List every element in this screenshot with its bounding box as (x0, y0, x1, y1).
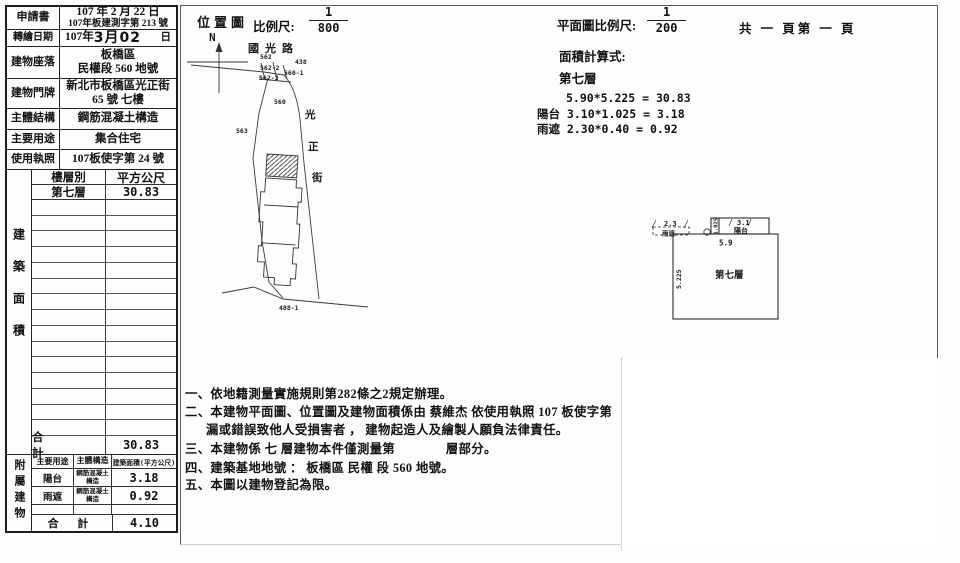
table-empty-row (32, 216, 176, 232)
table-empty-row (32, 405, 176, 421)
table-row-address: 建物門牌 新北市板橋區光正街 65 號 七樓 (7, 79, 176, 109)
annex-section: 附屬建物 主要用途 主體構造 建築面積(平方公尺) 陽台 鋼筋混凝土構造 3.1… (7, 455, 176, 531)
application-label: 申請書 (7, 7, 60, 29)
parcel-562: 562 (260, 53, 272, 61)
north-label: N (209, 31, 216, 44)
street-char-2: 正 (308, 141, 319, 153)
balcony-dim: 3.1 (737, 219, 750, 227)
annex-total-value: 4.10 (113, 515, 176, 531)
application-case-number: 107年板建測字第 213 號 (68, 19, 168, 30)
address-number: 65 號 七樓 (92, 94, 144, 107)
address-label: 建物門牌 (7, 79, 60, 108)
floor-area-side-label: 建築面積 (11, 228, 28, 454)
annex-area-header: 建築面積(平方公尺) (112, 455, 176, 468)
table-empty-row (32, 263, 176, 279)
floor-col-header: 樓層別 (32, 170, 106, 184)
annex-structure-header: 主體構造 (74, 455, 112, 468)
annex-total-label: 合 計 (32, 515, 113, 531)
floor-data-row: 第七層 30.83 (32, 185, 176, 200)
structure-value: 鋼筋混凝土構造 (60, 109, 176, 129)
survey-document-page: 申請書 107 年 2 月 22 日 107年板建測字第 213 號 轉繪日期 … (0, 0, 960, 563)
annex-balcony-structure: 鋼筋混凝土構造 (74, 469, 112, 486)
transcribe-date-label: 轉繪日期 (7, 30, 60, 46)
location-parcel: 民權段 560 地號 (78, 63, 159, 76)
table-empty-row (32, 326, 176, 342)
floor-total-value: 30.83 (106, 436, 176, 454)
road-name-top: 國光路 (248, 41, 299, 55)
table-row-license: 使用執照 107板使字第 24 號 (7, 150, 176, 170)
table-row-application: 申請書 107 年 2 月 22 日 107年板建測字第 213 號 (7, 7, 176, 30)
location-label: 建物座落 (7, 47, 60, 78)
usage-value: 集合住宅 (60, 130, 176, 149)
license-value: 107板使字第 24 號 (60, 150, 176, 169)
annex-balcony-use: 陽台 (32, 469, 74, 486)
annex-canopy-structure: 鋼筋混凝土構造 (74, 487, 112, 504)
location-district: 板橋區 (101, 49, 136, 62)
annex-side-strip: 附屬建物 (7, 455, 32, 531)
location-value: 板橋區 民權段 560 地號 (60, 47, 176, 78)
table-empty-row (32, 342, 176, 358)
street-char-3: 街 (311, 171, 323, 184)
subject-unit-hatched (266, 154, 298, 178)
floor-name: 第七層 (32, 185, 106, 199)
annex-use-header: 主要用途 (32, 455, 74, 468)
floor-area-table: 樓層別 平方公尺 第七層 30.83 (32, 170, 176, 454)
annex-table: 主要用途 主體構造 建築面積(平方公尺) 陽台 鋼筋混凝土構造 3.18 雨遮 … (32, 455, 176, 531)
annex-canopy-use: 雨遮 (32, 487, 74, 504)
annex-header-row: 主要用途 主體構造 建築面積(平方公尺) (32, 455, 176, 469)
structure-label: 主體結構 (7, 109, 60, 129)
parcel-560: 560 (274, 98, 286, 106)
floor-area-value: 30.83 (106, 185, 176, 199)
parcel-562-3: 562-3 (259, 74, 279, 82)
floor-total-label: 合 計 (32, 436, 106, 454)
transcribe-date-value: 107年 3月02 日 (60, 30, 176, 46)
parcel-563: 563 (236, 127, 248, 135)
canopy-dim: 2.3 (664, 220, 677, 228)
area-col-header: 平方公尺 (106, 170, 176, 184)
annex-canopy-area: 0.92 (112, 487, 176, 504)
main-height-dim: 5.225 (675, 269, 683, 289)
parcel-488-1: 488-1 (279, 304, 299, 312)
main-width-dim: 5.9 (719, 239, 733, 248)
annex-row-balcony: 陽台 鋼筋混凝土構造 3.18 (32, 469, 176, 487)
parcel-560-1: 560-1 (284, 69, 304, 77)
building-footprint (255, 154, 304, 286)
license-label: 使用執照 (7, 150, 60, 169)
table-row-structure: 主體結構 鋼筋混凝土構造 (7, 109, 176, 130)
annex-empty-row (32, 505, 176, 515)
canopy-label: 雨遮 (662, 229, 676, 238)
application-date: 107 年 2 月 22 日 (76, 6, 159, 19)
floor-area-side-strip: 建築面積 (7, 170, 32, 454)
address-value: 新北市板橋區光正街 65 號 七樓 (60, 79, 176, 108)
parcel-562-2: 562-2 (260, 64, 280, 72)
table-empty-row (32, 200, 176, 216)
transcribe-day-suffix: 日 (161, 32, 172, 44)
transcribe-stamp: 3月02 (94, 30, 141, 46)
table-row-usage: 主要用途 集合住宅 (7, 130, 176, 150)
table-empty-row (32, 357, 176, 373)
table-row-transcribe-date: 轉繪日期 107年 3月02 日 (7, 30, 176, 47)
building-info-table: 申請書 107 年 2 月 22 日 107年板建測字第 213 號 轉繪日期 … (5, 5, 178, 533)
parcel-438: 438 (295, 58, 307, 66)
annex-row-canopy: 雨遮 鋼筋混凝土構造 0.92 (32, 487, 176, 505)
table-empty-row (32, 310, 176, 326)
table-empty-row (32, 373, 176, 389)
annex-balcony-area: 3.18 (112, 469, 176, 486)
drawing-area: 位置圖 比例尺: 1 800 平面圖比例尺: 1 200 共 一 頁第 一 頁 … (180, 5, 938, 545)
main-floor-label: 第七層 (715, 269, 744, 281)
table-empty-row (32, 294, 176, 310)
floor-area-section: 建築面積 樓層別 平方公尺 第七層 30.83 (7, 170, 176, 455)
street-name-vertical: 光 正 街 (304, 108, 323, 184)
annex-total-row: 合 計 4.10 (32, 515, 176, 531)
table-empty-row (32, 247, 176, 263)
street-char-1: 光 (304, 108, 316, 121)
table-empty-row (32, 389, 176, 405)
application-value: 107 年 2 月 22 日 107年板建測字第 213 號 (60, 7, 176, 29)
usage-label: 主要用途 (7, 130, 60, 149)
table-empty-row (32, 279, 176, 295)
table-empty-row (32, 231, 176, 247)
balcony-depth-dim: 1.025 (714, 218, 720, 235)
white-paper-patch (621, 358, 943, 550)
floor-table-header: 樓層別 平方公尺 (32, 170, 176, 185)
floor-total-row: 合 計 30.83 (32, 436, 176, 454)
balcony-label: 陽台 (734, 226, 748, 235)
address-street: 新北市板橋區光正街 (66, 80, 170, 93)
transcribe-year: 107年 (65, 31, 94, 44)
table-row-location: 建物座落 板橋區 民權段 560 地號 (7, 47, 176, 79)
annex-side-label: 附屬建物 (11, 459, 27, 531)
